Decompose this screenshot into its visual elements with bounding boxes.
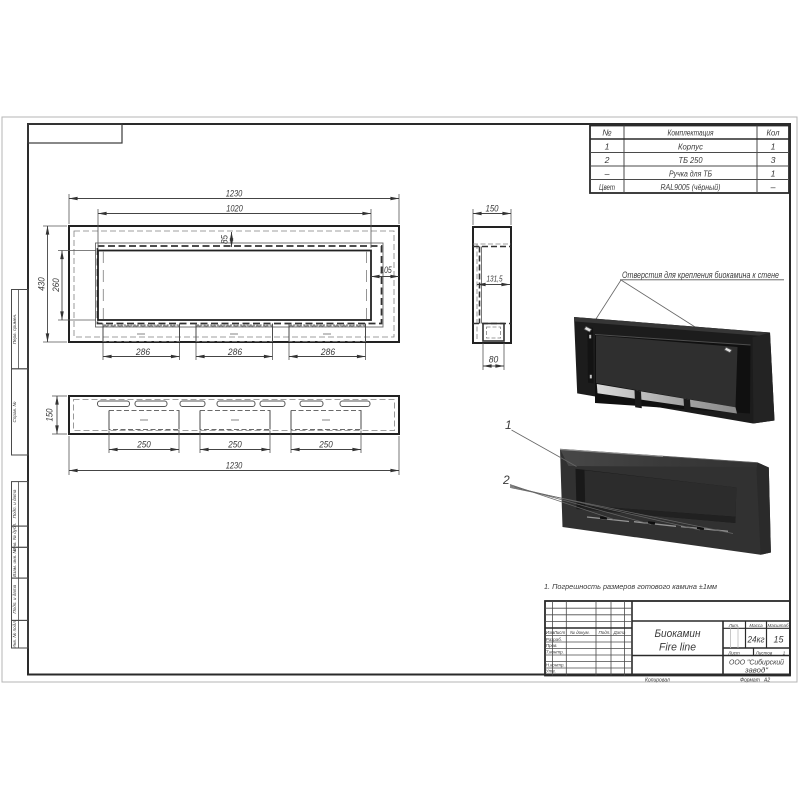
svg-text:1. Погрешность размеров готово: 1. Погрешность размеров готового камина … (544, 582, 718, 591)
svg-text:24кг: 24кг (747, 635, 765, 645)
svg-text:286: 286 (227, 346, 243, 357)
svg-text:Т.контр.: Т.контр. (546, 650, 564, 655)
svg-text:Утв.: Утв. (546, 669, 556, 674)
svg-text:15: 15 (773, 635, 784, 645)
svg-text:Инв. № подл.: Инв. № подл. (12, 620, 17, 649)
svg-text:–: – (770, 182, 776, 192)
svg-text:1020: 1020 (226, 203, 243, 214)
svg-text:Дата: Дата (613, 630, 626, 635)
svg-text:Подп.: Подп. (599, 630, 611, 635)
svg-text:Лит.: Лит. (728, 623, 740, 628)
svg-text:Подп. и дата: Подп. и дата (12, 584, 17, 613)
svg-text:№: № (602, 128, 611, 138)
svg-text:250: 250 (227, 439, 242, 450)
svg-text:№ докум.: № докум. (570, 630, 590, 635)
svg-text:Подп. и дата: Подп. и дата (12, 489, 17, 518)
svg-text:286: 286 (320, 346, 336, 357)
svg-text:3: 3 (771, 155, 776, 165)
svg-text:Взам. инв. №: Взам. инв. № (12, 548, 17, 576)
svg-text:Пров.: Пров. (546, 643, 558, 648)
svg-text:250: 250 (136, 439, 151, 450)
svg-text:105: 105 (380, 265, 392, 275)
svg-text:Отверстия для крепления биокам: Отверстия для крепления биокамина к стен… (622, 270, 779, 280)
svg-text:250: 250 (318, 439, 333, 450)
svg-text:завод": завод" (744, 666, 768, 675)
svg-text:Листов: Листов (755, 650, 773, 655)
svg-text:Копировал: Копировал (645, 678, 670, 684)
svg-text:150: 150 (44, 408, 55, 422)
svg-text:80: 80 (489, 354, 499, 365)
svg-text:131,5: 131,5 (487, 274, 503, 284)
svg-text:Комплектация: Комплектация (668, 128, 714, 138)
svg-text:Лист: Лист (553, 630, 566, 635)
svg-text:Справ. №: Справ. № (12, 402, 17, 423)
svg-text:1: 1 (505, 418, 512, 432)
svg-text:Лист: Лист (727, 650, 740, 655)
svg-text:Формат: Формат (740, 678, 760, 684)
svg-text:–: – (604, 168, 610, 178)
svg-text:Разраб.: Разраб. (546, 637, 562, 642)
svg-text:85: 85 (220, 235, 230, 244)
svg-text:Кол: Кол (767, 128, 780, 138)
svg-text:RAL9005 (чёрный): RAL9005 (чёрный) (661, 182, 721, 192)
svg-text:Fire line: Fire line (659, 642, 696, 654)
svg-text:ТБ 250: ТБ 250 (679, 155, 703, 165)
svg-text:А2: А2 (763, 678, 770, 684)
svg-text:Ручка для ТБ: Ручка для ТБ (669, 168, 712, 178)
svg-text:Корпус: Корпус (678, 141, 704, 151)
svg-text:Масса: Масса (749, 623, 763, 628)
svg-text:150: 150 (486, 203, 500, 214)
svg-text:Инв. № дубл.: Инв. № дубл. (12, 523, 17, 551)
svg-text:1: 1 (771, 141, 776, 151)
svg-text:430: 430 (36, 277, 47, 291)
svg-text:Биокамин: Биокамин (655, 628, 701, 640)
svg-text:260: 260 (50, 278, 61, 293)
svg-text:Перв. примен.: Перв. примен. (12, 314, 17, 345)
svg-text:Масштаб: Масштаб (767, 623, 788, 628)
svg-text:Н.контр.: Н.контр. (546, 662, 565, 667)
svg-text:Цвет: Цвет (599, 182, 615, 192)
svg-text:1230: 1230 (226, 460, 243, 471)
svg-text:1: 1 (605, 141, 610, 151)
svg-text:1230: 1230 (226, 188, 243, 199)
svg-text:286: 286 (135, 346, 151, 357)
svg-text:2: 2 (604, 155, 610, 165)
svg-text:1: 1 (771, 168, 776, 178)
svg-text:2: 2 (502, 473, 510, 487)
